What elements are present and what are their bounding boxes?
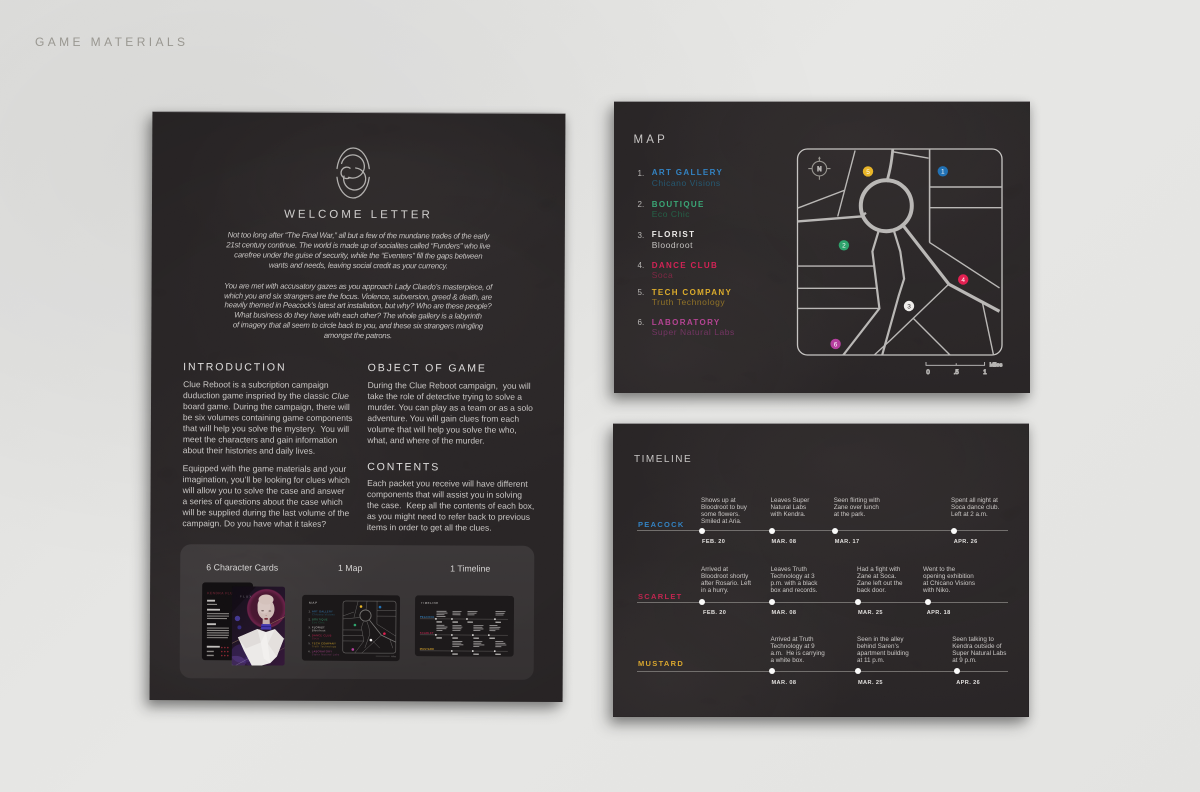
svg-text:FLUX: FLUX — [240, 594, 252, 598]
svg-text:Bloodroot: Bloodroot — [312, 628, 326, 632]
svg-text:PEACOCK: PEACOCK — [420, 616, 435, 619]
svg-text:Truth Technology: Truth Technology — [312, 644, 337, 648]
svg-text:1: 1 — [983, 369, 987, 375]
svg-text:5: 5 — [866, 168, 870, 175]
svg-text:6: 6 — [833, 341, 837, 348]
svg-text:SCARLET: SCARLET — [420, 632, 434, 635]
svg-text:2.: 2. — [308, 617, 311, 621]
svg-text:Chicano Visions: Chicano Visions — [312, 612, 335, 616]
svg-text:3.: 3. — [308, 625, 311, 629]
svg-text:2: 2 — [842, 242, 846, 249]
svg-text:MAP: MAP — [309, 601, 318, 605]
svg-text:4: 4 — [961, 276, 965, 283]
svg-text:6.: 6. — [308, 649, 311, 653]
svg-text:Miles: Miles — [391, 656, 396, 658]
svg-text:Soca: Soca — [312, 636, 319, 640]
svg-text:.5: .5 — [953, 369, 959, 375]
svg-text:1: 1 — [940, 168, 944, 175]
svg-text:3: 3 — [907, 303, 911, 310]
svg-text:Miles: Miles — [989, 362, 1002, 368]
svg-text:1.: 1. — [308, 609, 311, 613]
svg-text:Super Natural Labs: Super Natural Labs — [312, 652, 340, 656]
svg-text:TIMELINE: TIMELINE — [421, 601, 439, 605]
svg-text:4.: 4. — [308, 633, 311, 637]
svg-text:Eco Chic: Eco Chic — [312, 620, 325, 624]
svg-text:N: N — [817, 167, 821, 173]
svg-text:0: 0 — [926, 369, 930, 375]
svg-text:5.: 5. — [308, 641, 311, 645]
svg-text:MUSTARD: MUSTARD — [420, 648, 434, 651]
